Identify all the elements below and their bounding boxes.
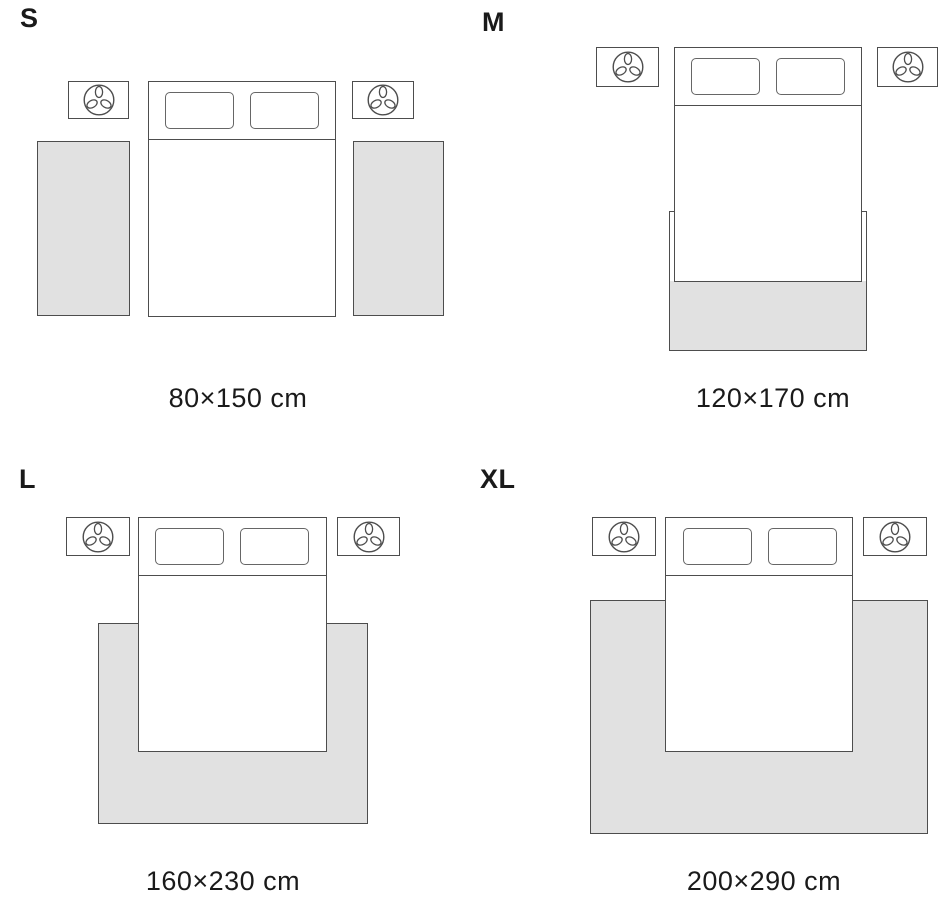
panel-m-heading: M (482, 9, 505, 36)
bed (148, 81, 336, 317)
panel-s-heading: S (20, 5, 39, 32)
bed-headboard-divider (675, 105, 861, 106)
plant-icon (82, 521, 114, 553)
panel-s-size-label: 80×150 cm (38, 385, 438, 412)
nightstand (863, 517, 927, 556)
pillow (768, 528, 837, 565)
rug-runner-left (37, 141, 130, 316)
panel-xl-heading: XL (480, 466, 516, 493)
bed (674, 47, 862, 282)
panel-l-size-label: 160×230 cm (23, 868, 423, 895)
plant-icon (367, 84, 399, 116)
nightstand (68, 81, 129, 119)
bed-headboard-divider (139, 575, 326, 576)
plant-icon (879, 521, 911, 553)
pillow (683, 528, 752, 565)
bed-headboard-divider (149, 139, 335, 140)
nightstand (66, 517, 130, 556)
panel-xl-size-label: 200×290 cm (564, 868, 950, 895)
pillow (165, 92, 234, 129)
rug-runner-right (353, 141, 444, 316)
pillow (240, 528, 309, 565)
bed (665, 517, 853, 752)
panel-m-size-label: 120×170 cm (573, 385, 950, 412)
rug-size-guide: S 80×150 cm M (0, 0, 950, 900)
plant-icon (83, 84, 115, 116)
bed-headboard-divider (666, 575, 852, 576)
nightstand (596, 47, 659, 87)
plant-icon (612, 51, 644, 83)
nightstand (592, 517, 656, 556)
pillow (250, 92, 319, 129)
plant-icon (892, 51, 924, 83)
nightstand (337, 517, 400, 556)
plant-icon (353, 521, 385, 553)
pillow (155, 528, 224, 565)
plant-icon (608, 521, 640, 553)
pillow (691, 58, 760, 95)
nightstand (352, 81, 414, 119)
pillow (776, 58, 845, 95)
rug-visible-area (670, 281, 866, 350)
bed (138, 517, 327, 752)
nightstand (877, 47, 938, 87)
panel-l-heading: L (19, 466, 36, 493)
